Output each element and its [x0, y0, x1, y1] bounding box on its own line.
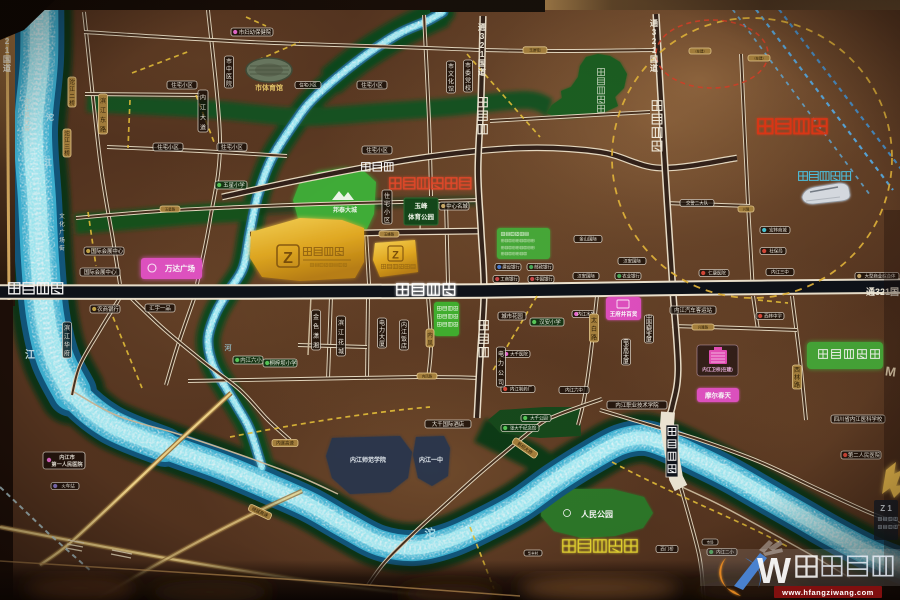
svg-text:W: W — [757, 550, 791, 591]
svg-text:www.hfangziwang.com: www.hfangziwang.com — [781, 588, 874, 597]
